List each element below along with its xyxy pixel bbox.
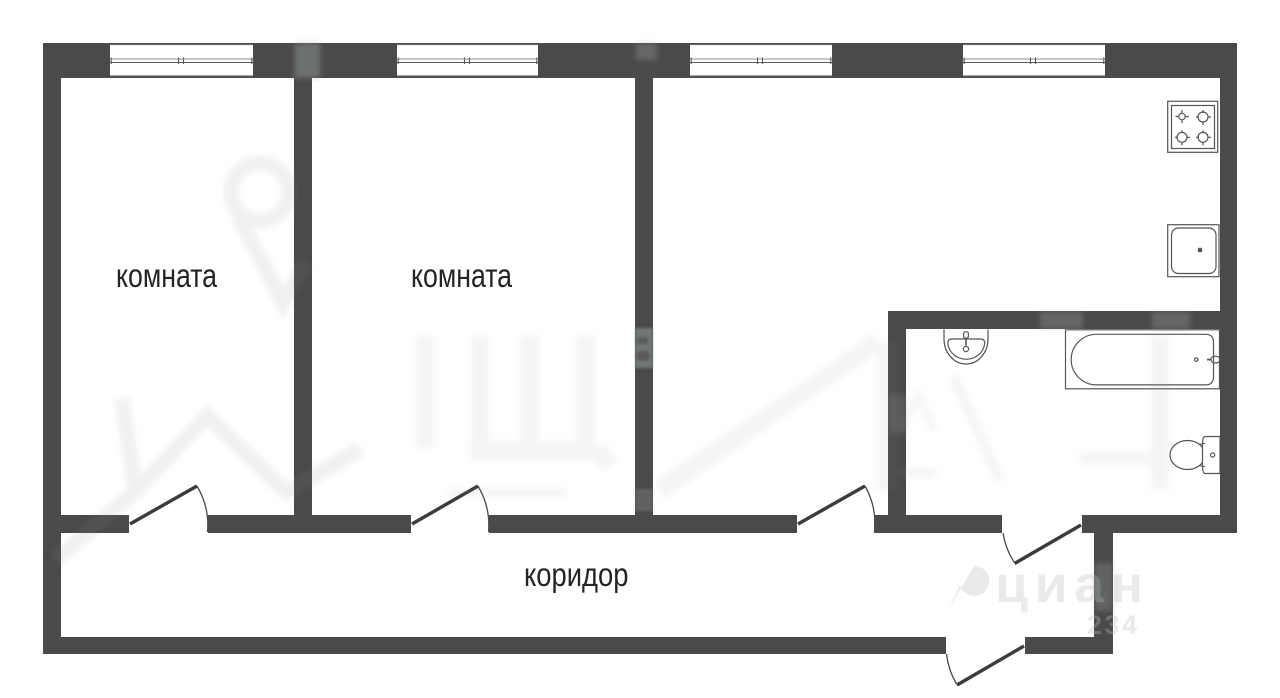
- svg-text:комната: комната: [116, 258, 217, 294]
- svg-text:циан: циан: [995, 556, 1150, 614]
- svg-text:коридор: коридор: [524, 558, 628, 594]
- svg-text:234: 234: [1087, 610, 1140, 640]
- svg-text:комната: комната: [411, 258, 512, 294]
